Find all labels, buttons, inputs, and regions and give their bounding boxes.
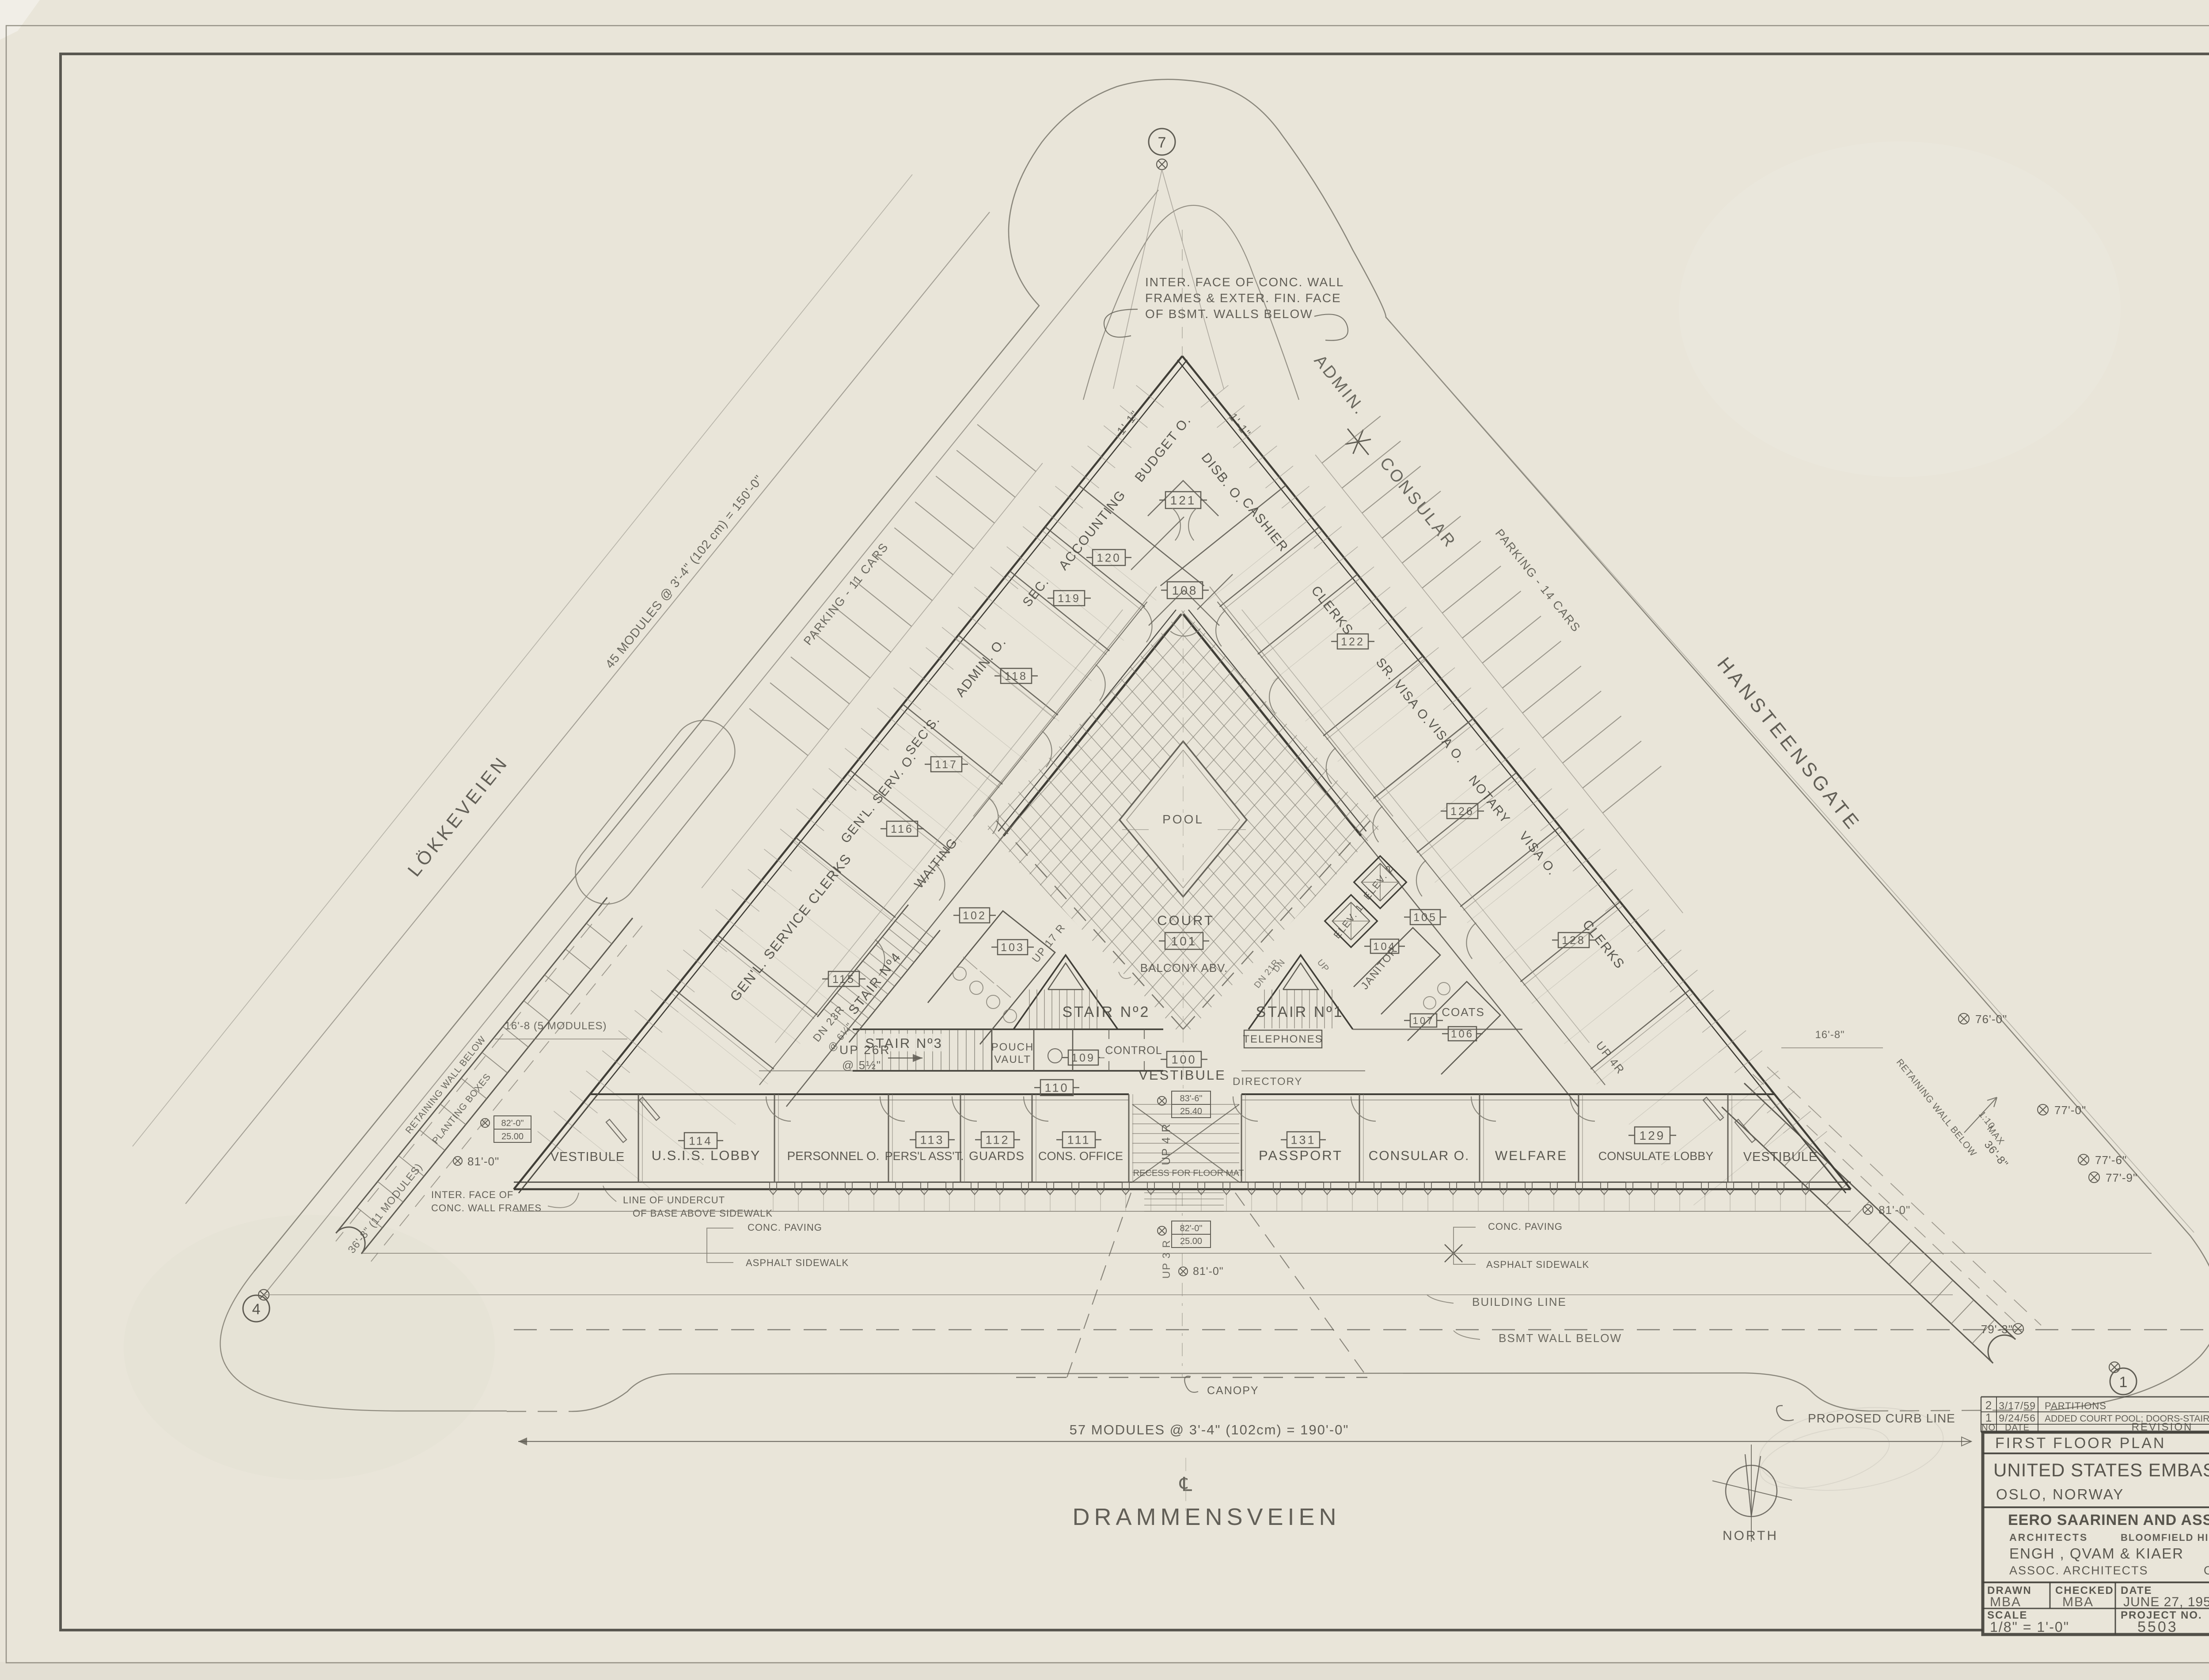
svg-text:NORTH: NORTH: [1723, 1528, 1778, 1543]
svg-text:BLOOMFIELD HILLS, MICHIGAN: BLOOMFIELD HILLS, MICHIGAN: [2121, 1532, 2209, 1543]
svg-text:MBA: MBA: [1990, 1595, 2021, 1609]
svg-text:113: 113: [920, 1134, 944, 1147]
svg-text:WELFARE: WELFARE: [1495, 1149, 1568, 1163]
svg-text:1: 1: [1985, 1411, 1992, 1424]
svg-text:57 MODULES @ 3'-4" (102cm) = 1: 57 MODULES @ 3'-4" (102cm) = 190'-0": [1070, 1422, 1349, 1437]
svg-text:111: 111: [1067, 1134, 1090, 1147]
svg-text:25.40: 25.40: [1180, 1107, 1202, 1116]
svg-text:DRAMMENSVEIEN: DRAMMENSVEIEN: [1072, 1504, 1340, 1530]
svg-text:81'-0": 81'-0": [1193, 1265, 1224, 1278]
svg-text:9/24/56: 9/24/56: [1999, 1412, 2036, 1424]
svg-text:INTER. FACE OF: INTER. FACE OF: [431, 1189, 513, 1200]
svg-text:82'-0": 82'-0": [1180, 1224, 1203, 1233]
svg-text:121: 121: [1170, 493, 1196, 507]
svg-text:PROPOSED CURB LINE: PROPOSED CURB LINE: [1808, 1411, 1955, 1425]
svg-text:CONC. WALL FRAMES: CONC. WALL FRAMES: [431, 1202, 542, 1214]
svg-text:OF BASE ABOVE SIDEWALK: OF BASE ABOVE SIDEWALK: [633, 1208, 773, 1219]
svg-text:122: 122: [1341, 636, 1365, 648]
svg-text:COATS: COATS: [1442, 1005, 1485, 1019]
svg-text:UP 26R: UP 26R: [839, 1043, 891, 1057]
svg-text:77'-0": 77'-0": [2054, 1104, 2086, 1117]
svg-text:117: 117: [935, 758, 958, 771]
svg-text:ASPHALT SIDEWALK: ASPHALT SIDEWALK: [1486, 1259, 1589, 1270]
svg-text:VESTIBULE: VESTIBULE: [1743, 1150, 1818, 1164]
svg-text:TELEPHONES: TELEPHONES: [1243, 1033, 1323, 1045]
svg-text:100: 100: [1171, 1053, 1196, 1066]
svg-text:INTER. FACE OF CONC. WALL: INTER. FACE OF CONC. WALL: [1145, 275, 1344, 289]
svg-text:77'-9": 77'-9": [2106, 1171, 2137, 1184]
svg-text:101: 101: [1171, 934, 1197, 948]
svg-text:115: 115: [832, 973, 855, 986]
svg-text:UNITED STATES EMBASSY BLDG.: UNITED STATES EMBASSY BLDG.: [1993, 1460, 2209, 1480]
svg-text:25.00: 25.00: [1180, 1236, 1202, 1246]
svg-text:116: 116: [891, 823, 914, 835]
svg-text:81'-0": 81'-0": [467, 1155, 499, 1168]
svg-text:83'-6": 83'-6": [1180, 1094, 1203, 1104]
svg-text:109: 109: [1071, 1052, 1095, 1064]
svg-text:PASSPORT: PASSPORT: [1259, 1148, 1343, 1163]
svg-text:CONSULAR O.: CONSULAR O.: [1369, 1149, 1470, 1163]
svg-text:MBA: MBA: [2062, 1595, 2094, 1609]
svg-text:103: 103: [1001, 941, 1025, 954]
svg-text:76'-0": 76'-0": [1975, 1013, 2007, 1026]
svg-text:CONSULATE LOBBY: CONSULATE LOBBY: [1598, 1149, 1714, 1163]
svg-text:COURT: COURT: [1157, 913, 1215, 928]
svg-text:LINE OF UNDERCUT: LINE OF UNDERCUT: [623, 1195, 725, 1206]
svg-text:102: 102: [963, 910, 987, 922]
svg-text:JUNE 27, 1956: JUNE 27, 1956: [2123, 1595, 2209, 1609]
svg-text:7: 7: [1158, 134, 1166, 151]
svg-text:131: 131: [1290, 1134, 1316, 1147]
svg-text:DIRECTORY: DIRECTORY: [1233, 1076, 1302, 1088]
svg-text:FIRST FLOOR PLAN: FIRST FLOOR PLAN: [1995, 1435, 2166, 1452]
svg-text:82'-0": 82'-0": [501, 1119, 524, 1128]
svg-text:107: 107: [1413, 1015, 1435, 1026]
svg-text:5503: 5503: [2137, 1619, 2178, 1635]
svg-text:118: 118: [1005, 670, 1028, 683]
svg-text:77'-6": 77'-6": [2095, 1153, 2127, 1167]
svg-text:OF BSMT. WALLS BELOW: OF BSMT. WALLS BELOW: [1145, 307, 1313, 321]
svg-text:126: 126: [1450, 805, 1474, 818]
svg-text:114: 114: [689, 1134, 712, 1147]
svg-text:16'-8": 16'-8": [1815, 1029, 1845, 1041]
svg-text:CANOPY: CANOPY: [1207, 1384, 1259, 1397]
svg-text:GUARDS: GUARDS: [969, 1149, 1025, 1163]
svg-text:128: 128: [1562, 934, 1586, 947]
svg-text:BSMT WALL BELOW: BSMT WALL BELOW: [1499, 1331, 1622, 1345]
svg-text:ASSOC. ARCHITECTS: ASSOC. ARCHITECTS: [2009, 1564, 2148, 1577]
svg-text:112: 112: [985, 1134, 1010, 1147]
svg-text:STAIR Nº2: STAIR Nº2: [1063, 1004, 1150, 1020]
svg-text:FRAMES & EXTER. FIN. FACE: FRAMES & EXTER. FIN. FACE: [1145, 291, 1341, 305]
svg-text:BUILDING LINE: BUILDING LINE: [1472, 1295, 1567, 1308]
svg-text:129: 129: [1640, 1129, 1666, 1142]
svg-text:ENGH , QVAM & KIAER: ENGH , QVAM & KIAER: [2009, 1545, 2184, 1562]
svg-text:CONC. PAVING: CONC. PAVING: [748, 1222, 822, 1233]
svg-text:2: 2: [1985, 1399, 1992, 1412]
svg-text:PERSONNEL O.: PERSONNEL O.: [787, 1149, 879, 1163]
svg-text:PARTITIONS: PARTITIONS: [2045, 1400, 2107, 1411]
svg-text:1: 1: [2119, 1374, 2128, 1391]
svg-text:16'-8 (5 MODULES): 16'-8 (5 MODULES): [505, 1020, 607, 1032]
svg-text:110: 110: [1044, 1081, 1069, 1095]
svg-text:CONS. OFFICE: CONS. OFFICE: [1038, 1149, 1123, 1163]
svg-text:RECESS FOR FLOOR MAT: RECESS FOR FLOOR MAT: [1133, 1168, 1244, 1178]
svg-text:U.S.I.S. LOBBY: U.S.I.S. LOBBY: [652, 1148, 761, 1163]
svg-text:ASPHALT SIDEWALK: ASPHALT SIDEWALK: [746, 1257, 849, 1268]
svg-text:OSLO, NORWAY: OSLO, NORWAY: [1996, 1486, 2124, 1502]
svg-text:120: 120: [1097, 551, 1121, 564]
svg-text:VAULT: VAULT: [994, 1054, 1031, 1066]
svg-text:4: 4: [252, 1301, 261, 1318]
svg-text:CONC. PAVING: CONC. PAVING: [1488, 1221, 1563, 1232]
svg-text:105: 105: [1413, 911, 1437, 924]
svg-text:EERO SAARINEN AND ASSOCIATES: EERO SAARINEN AND ASSOCIATES: [2008, 1512, 2209, 1528]
svg-text:106: 106: [1451, 1028, 1474, 1040]
svg-text:STAIR Nº1: STAIR Nº1: [1256, 1004, 1344, 1020]
svg-text:UP 3 R: UP 3 R: [1161, 1240, 1173, 1279]
svg-text:BALCONY ABV.: BALCONY ABV.: [1140, 961, 1228, 975]
svg-text:79'-3": 79'-3": [1981, 1323, 2013, 1336]
svg-text:@ 5½": @ 5½": [842, 1058, 881, 1072]
svg-text:81'-0": 81'-0": [1879, 1203, 1910, 1217]
svg-text:25.00: 25.00: [501, 1132, 524, 1141]
svg-text:PERS'L ASS'T.: PERS'L ASS'T.: [885, 1149, 964, 1163]
svg-text:ARCHITECTS: ARCHITECTS: [2009, 1532, 2088, 1543]
svg-text:OSLO, NORWAY: OSLO, NORWAY: [2204, 1564, 2209, 1577]
svg-text:119: 119: [1058, 592, 1081, 605]
svg-text:VESTIBULE: VESTIBULE: [1139, 1067, 1226, 1083]
svg-text:UP 4 R: UP 4 R: [1159, 1123, 1173, 1165]
svg-text:3/17/59: 3/17/59: [1999, 1400, 2036, 1411]
svg-text:VESTIBULE: VESTIBULE: [550, 1150, 625, 1164]
svg-text:CONTROL: CONTROL: [1105, 1044, 1162, 1057]
svg-text:POUCH: POUCH: [991, 1041, 1034, 1053]
svg-text:1/8" = 1'-0": 1/8" = 1'-0": [1990, 1619, 2069, 1635]
